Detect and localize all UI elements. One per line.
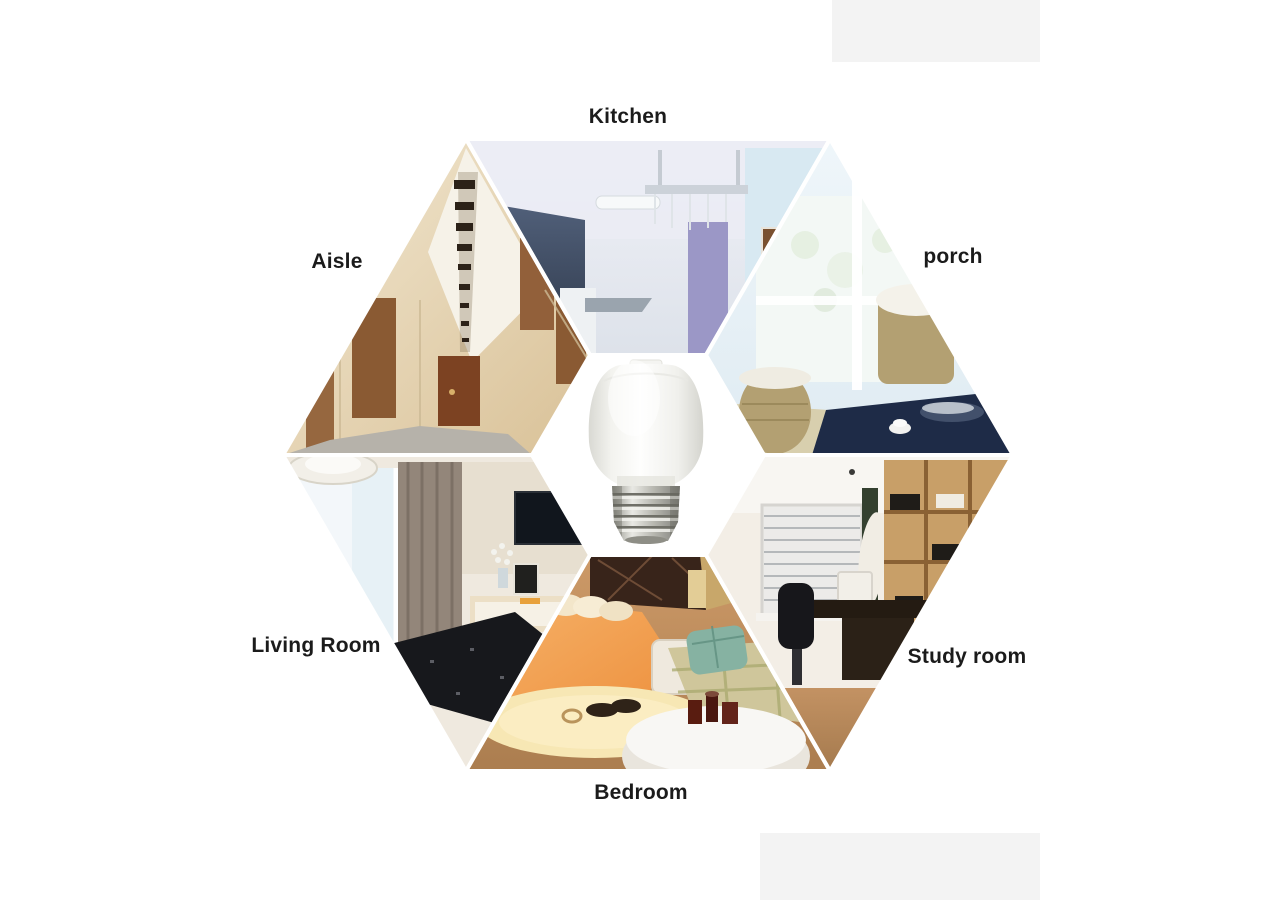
- label-aisle: Aisle: [311, 250, 362, 274]
- hexagon-collage-graphic: [0, 0, 1280, 900]
- label-living-room: Living Room: [251, 634, 380, 658]
- label-study-room: Study room: [908, 645, 1027, 669]
- label-porch: porch: [923, 245, 982, 269]
- label-kitchen: Kitchen: [589, 105, 667, 129]
- label-bedroom: Bedroom: [594, 781, 688, 805]
- product-infographic: Kitchen porch Study room Bedroom Living …: [0, 0, 1280, 900]
